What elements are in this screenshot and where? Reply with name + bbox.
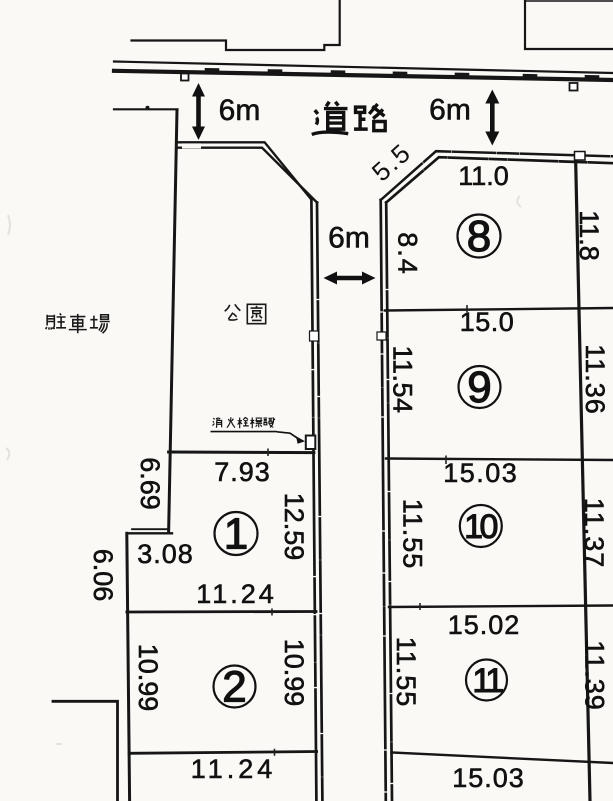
svg-text:15.0: 15.0 bbox=[460, 307, 515, 337]
svg-text:6m: 6m bbox=[328, 222, 370, 255]
svg-text:15.03: 15.03 bbox=[443, 458, 518, 488]
svg-text:11.37: 11.37 bbox=[579, 498, 609, 569]
svg-text:15.03: 15.03 bbox=[452, 763, 525, 793]
svg-text:8.4: 8.4 bbox=[393, 232, 423, 276]
svg-text:7.93: 7.93 bbox=[214, 457, 271, 487]
svg-text:10.99: 10.99 bbox=[279, 639, 309, 707]
svg-text:11.24: 11.24 bbox=[196, 579, 277, 609]
svg-text:11.36: 11.36 bbox=[580, 344, 610, 415]
svg-text:1: 1 bbox=[224, 510, 248, 559]
svg-text:11.0: 11.0 bbox=[458, 161, 509, 191]
svg-text:6.06: 6.06 bbox=[88, 549, 118, 602]
svg-text:6.69: 6.69 bbox=[135, 457, 165, 510]
svg-text:10: 10 bbox=[464, 508, 497, 546]
svg-text:9: 9 bbox=[467, 363, 491, 412]
svg-text:8: 8 bbox=[467, 212, 491, 261]
svg-text:2: 2 bbox=[222, 663, 246, 712]
svg-text:11.24: 11.24 bbox=[191, 754, 277, 784]
svg-text:6m: 6m bbox=[429, 94, 471, 127]
svg-text:11.54: 11.54 bbox=[388, 345, 418, 413]
svg-text:10.99: 10.99 bbox=[133, 644, 163, 712]
svg-text:15.02: 15.02 bbox=[448, 610, 521, 640]
svg-text:12.59: 12.59 bbox=[279, 493, 309, 561]
svg-text:11.55: 11.55 bbox=[391, 637, 421, 708]
svg-text:11: 11 bbox=[472, 662, 503, 700]
svg-text:11.39: 11.39 bbox=[580, 640, 610, 711]
svg-text:11.8: 11.8 bbox=[574, 210, 604, 261]
svg-text:3.08: 3.08 bbox=[137, 539, 194, 569]
svg-text:6m: 6m bbox=[219, 94, 261, 127]
svg-text:11.55: 11.55 bbox=[398, 499, 428, 570]
